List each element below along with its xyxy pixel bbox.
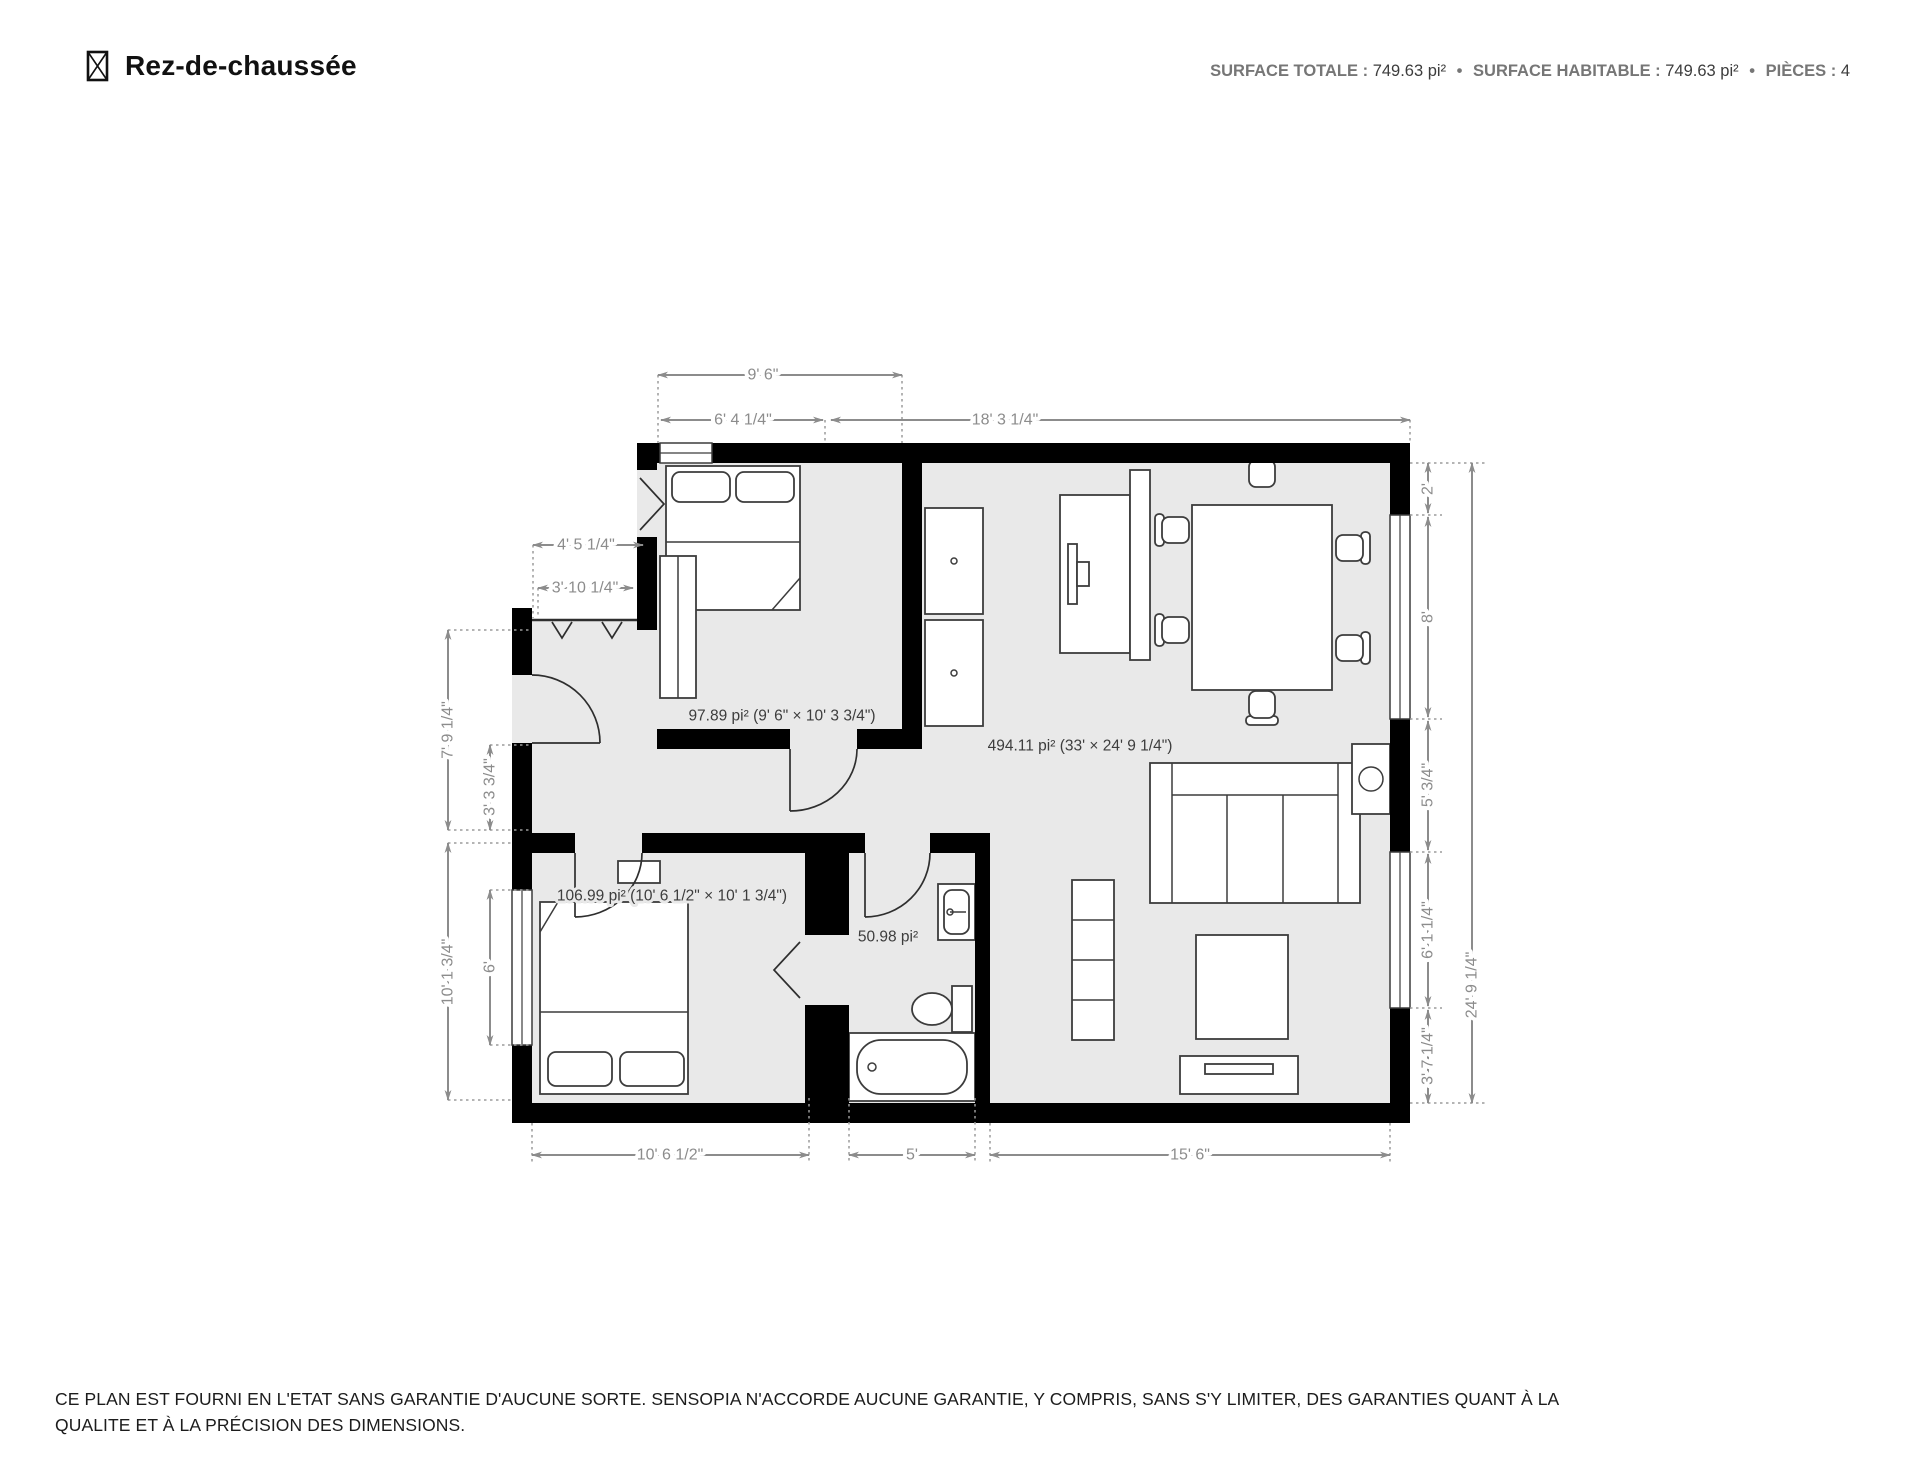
- sink-vanity-icon: [938, 884, 975, 940]
- dim-label: 2': [1420, 483, 1437, 495]
- dim-label: 18' 3 1/4": [972, 412, 1039, 429]
- room-label-bathroom: 50.98 pi²: [858, 929, 918, 946]
- window-icon: [512, 890, 532, 1045]
- dim-label: 5': [906, 1147, 918, 1164]
- room-label-living: 494.11 pi² (33' × 24' 9 1/4"): [988, 738, 1173, 755]
- window-icon: [1390, 515, 1410, 719]
- dim-label: 15' 6": [1170, 1147, 1210, 1164]
- double-bed-icon: [540, 902, 688, 1094]
- disclaimer-line-2: QUALITE ET À LA PRÉCISION DES DIMENSIONS…: [55, 1412, 1865, 1438]
- dim-label: 6' 1 1/4": [1420, 901, 1437, 959]
- dim-label: 24' 9 1/4": [1464, 952, 1481, 1019]
- dim-label: 7' 9 1/4": [440, 701, 457, 759]
- dim-label: 3' 10 1/4": [552, 580, 619, 597]
- dim-label: 3' 3 3/4": [482, 758, 499, 816]
- window-icon: [1390, 852, 1410, 1008]
- dim-label: 6': [482, 961, 499, 973]
- cabinet-column-icon: [1072, 880, 1114, 1040]
- dim-label: 10' 6 1/2": [637, 1147, 704, 1164]
- disclaimer-line-1: CE PLAN EST FOURNI EN L'ETAT SANS GARANT…: [55, 1386, 1865, 1412]
- dim-label: 10' 1 3/4": [440, 939, 457, 1006]
- bookshelf-icon: [1130, 470, 1150, 660]
- room-label-bedroom-2: 106.99 pi² (10' 6 1/2" × 10' 1 3/4"): [557, 888, 787, 905]
- room-label-bedroom-1: 97.89 pi² (9' 6" × 10' 3 3/4"): [688, 708, 875, 725]
- desk-icon: [1060, 495, 1130, 653]
- dim-label: 9' 6": [748, 367, 779, 384]
- floor-plan: 9' 6" 6' 4 1/4" 18' 3 1/4" 4' 5 1/4" 3' …: [0, 0, 1920, 1483]
- side-table-icon: [1352, 744, 1390, 814]
- dim-label: 8': [1420, 611, 1437, 623]
- dim-label: 6' 4 1/4": [714, 412, 772, 429]
- wardrobe-icon: [660, 556, 696, 698]
- dim-label: 5' 3/4": [1420, 763, 1437, 807]
- bathtub-icon: [849, 1033, 975, 1101]
- coffee-table-icon: [1196, 935, 1288, 1039]
- tv-stand-icon: [1180, 1056, 1298, 1094]
- dim-label: 4' 5 1/4": [557, 537, 615, 554]
- disclaimer: CE PLAN EST FOURNI EN L'ETAT SANS GARANT…: [55, 1386, 1865, 1439]
- window-icon: [660, 443, 712, 463]
- sofa-icon: [1150, 763, 1360, 903]
- dim-label: 3' 7 1/4": [1420, 1027, 1437, 1085]
